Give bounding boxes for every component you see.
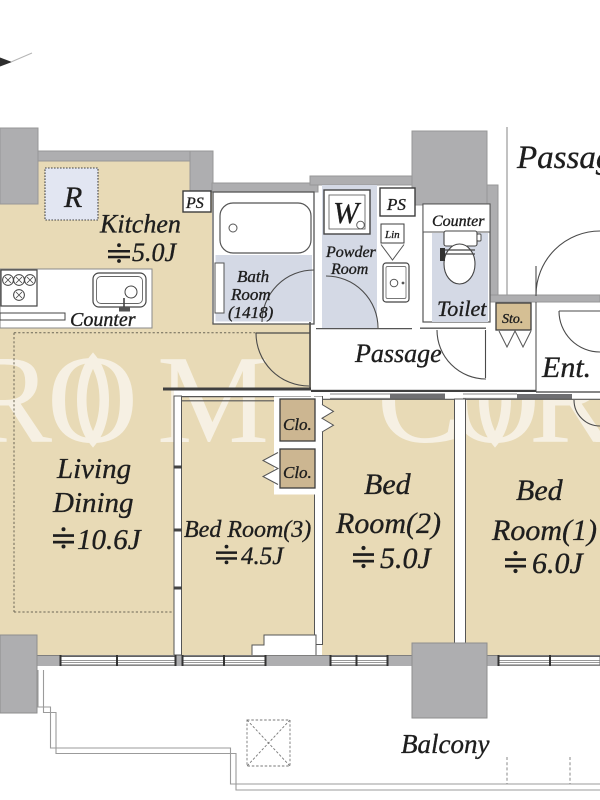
- svg-text:Sto.: Sto.: [502, 312, 523, 327]
- svg-text:PS: PS: [386, 195, 406, 214]
- svg-text:Clo.: Clo.: [283, 415, 312, 434]
- svg-text:5.0J: 5.0J: [380, 542, 433, 575]
- svg-text:5.0J: 5.0J: [132, 238, 178, 267]
- svg-text:O: O: [47, 331, 138, 470]
- svg-text:Dining: Dining: [52, 487, 134, 519]
- svg-text:(1418): (1418): [228, 303, 274, 322]
- svg-text:Clo.: Clo.: [283, 463, 312, 482]
- svg-text:Counter: Counter: [70, 309, 136, 331]
- svg-text:Passage: Passage: [354, 339, 442, 368]
- svg-text:Ent.: Ent.: [541, 351, 591, 384]
- svg-text:Toilet: Toilet: [437, 296, 487, 321]
- svg-text:Powder: Powder: [325, 244, 377, 261]
- svg-text:R: R: [0, 331, 52, 470]
- svg-text:4.5J: 4.5J: [241, 543, 285, 570]
- svg-text:Room(2): Room(2): [335, 507, 441, 540]
- svg-text:Kitchen: Kitchen: [99, 210, 181, 239]
- svg-text:Balcony: Balcony: [401, 729, 489, 759]
- svg-text:R: R: [63, 181, 82, 214]
- svg-text:PS: PS: [185, 195, 204, 212]
- svg-text:Bed Room(3): Bed Room(3): [184, 517, 311, 543]
- svg-text:Room: Room: [330, 261, 368, 278]
- svg-text:Room: Room: [230, 285, 271, 304]
- svg-text:Bath: Bath: [237, 267, 269, 286]
- svg-text:Passage: Passage: [516, 140, 600, 176]
- svg-text:Bed: Bed: [364, 468, 412, 501]
- svg-text:Counter: Counter: [432, 213, 485, 230]
- svg-text:Room(1): Room(1): [491, 514, 597, 547]
- svg-text:6.0J: 6.0J: [532, 547, 585, 580]
- svg-text:Living: Living: [56, 453, 131, 485]
- svg-text:Lin: Lin: [384, 229, 400, 241]
- svg-text:Bed: Bed: [516, 474, 564, 507]
- svg-text:10.6J: 10.6J: [77, 524, 142, 556]
